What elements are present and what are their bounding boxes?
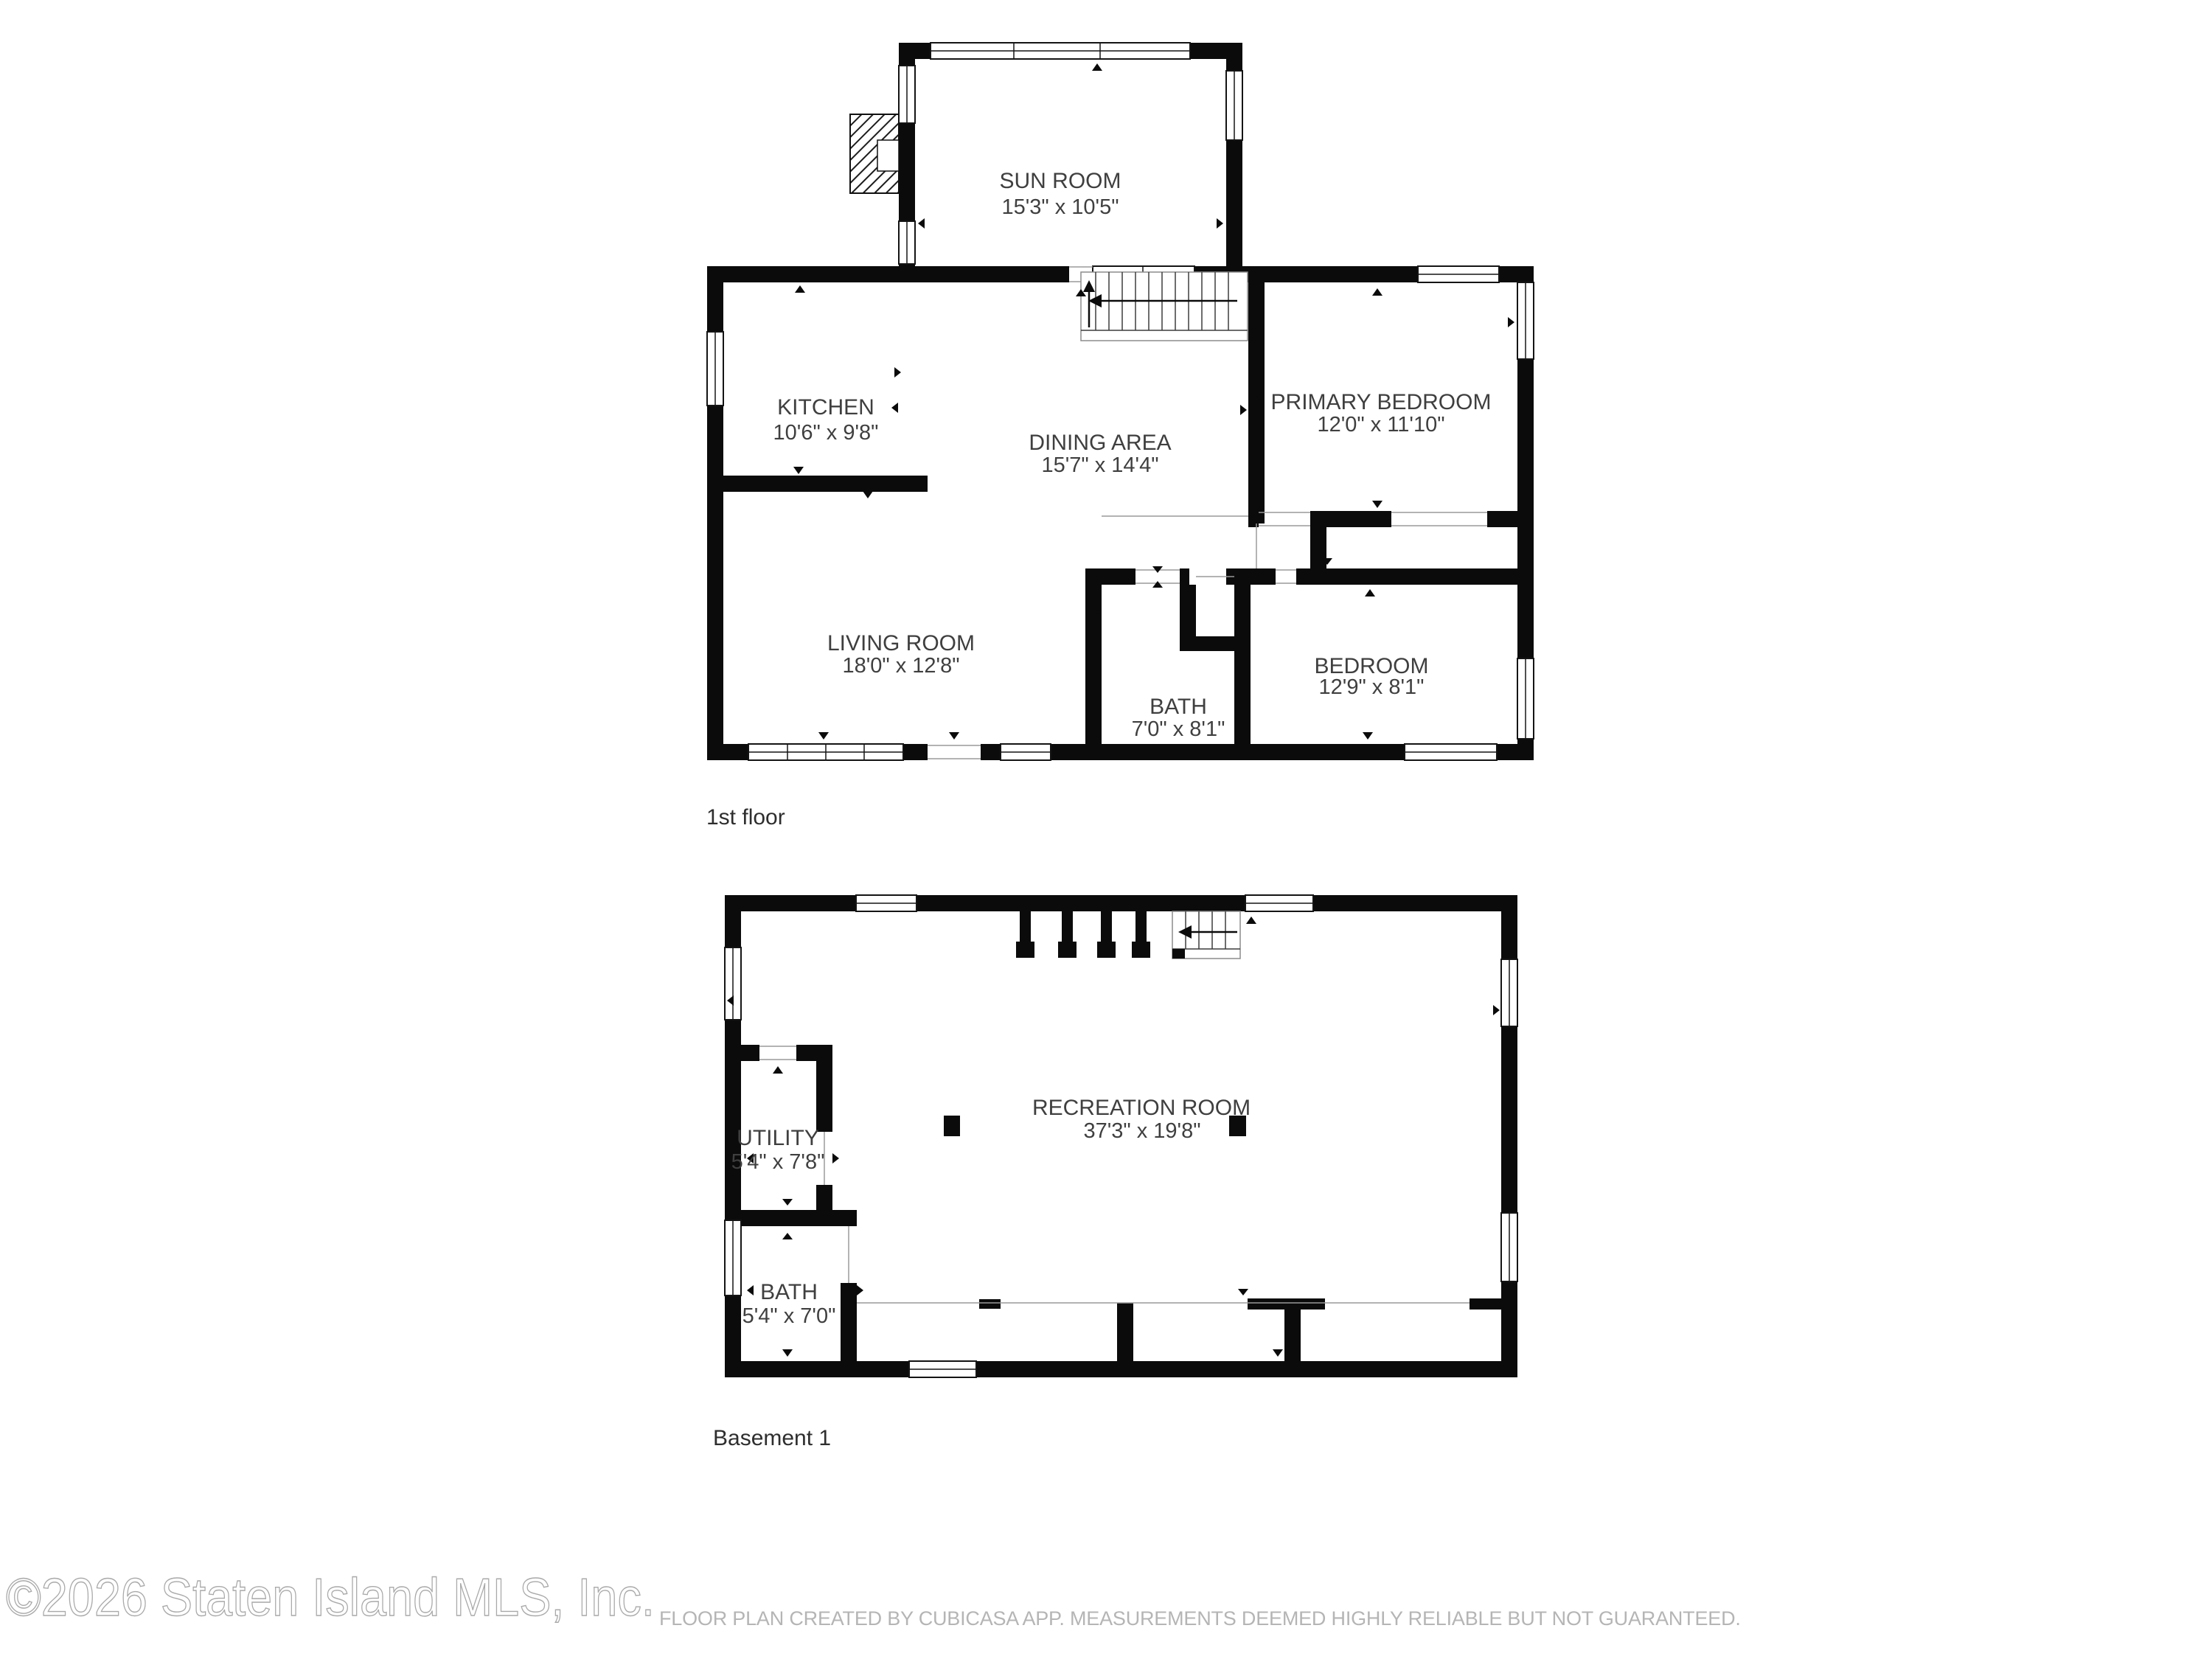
basement-door-openings xyxy=(759,1046,1470,1303)
room-dims-recreation-room: 37'3" x 19'8" xyxy=(1083,1119,1200,1143)
room-label-bath: BATH xyxy=(1150,695,1207,719)
room-dims-primary-bedroom: 12'0" x 11'10" xyxy=(1317,413,1444,437)
room-dims-dining-area: 15'7" x 14'4" xyxy=(1041,453,1158,477)
room-label-kitchen: KITCHEN xyxy=(777,395,874,420)
room-label-living-room: LIVING ROOM xyxy=(827,631,975,655)
room-dims-sun-room: 15'3" x 10'5" xyxy=(1001,195,1119,219)
basement-stairs xyxy=(1172,911,1240,959)
room-dims-basement-bath: 5'4" x 7'0" xyxy=(742,1304,836,1328)
room-dims-utility: 5'4" x 7'8" xyxy=(731,1150,825,1174)
first-floor-room-labels: SUN ROOM 15'3" x 10'5" KITCHEN 10'6" x 9… xyxy=(773,169,1492,741)
first-floor-stairs xyxy=(1081,272,1248,341)
mls-watermark: ©2026 Staten Island MLS, Inc. xyxy=(6,1568,655,1628)
first-floor-plan: SUN ROOM 15'3" x 10'5" KITCHEN 10'6" x 9… xyxy=(693,29,1548,774)
room-label-primary-bedroom: PRIMARY BEDROOM xyxy=(1271,390,1492,414)
room-label-utility: UTILITY xyxy=(737,1126,819,1150)
room-dims-bath: 7'0" x 8'1" xyxy=(1132,717,1225,741)
room-label-recreation-room: RECREATION ROOM xyxy=(1032,1096,1251,1120)
cubicasa-disclaimer: FLOOR PLAN CREATED BY CUBICASA APP. MEAS… xyxy=(659,1607,1741,1630)
room-label-sun-room: SUN ROOM xyxy=(1000,169,1121,193)
chimney xyxy=(850,114,899,193)
room-dims-living-room: 18'0" x 12'8" xyxy=(842,654,959,678)
basement-floor-label: Basement 1 xyxy=(713,1426,831,1451)
basement-floor-plan: RECREATION ROOM 37'3" x 19'8" UTILITY 5'… xyxy=(693,870,1548,1460)
room-dims-kitchen: 10'6" x 9'8" xyxy=(773,421,879,445)
floor-plan-page: SUN ROOM 15'3" x 10'5" KITCHEN 10'6" x 9… xyxy=(0,0,2212,1659)
room-dims-bedroom: 12'9" x 8'1" xyxy=(1319,675,1425,699)
room-label-dining-area: DINING AREA xyxy=(1029,431,1171,455)
first-floor-label: 1st floor xyxy=(706,805,785,830)
room-label-basement-bath: BATH xyxy=(760,1280,818,1304)
